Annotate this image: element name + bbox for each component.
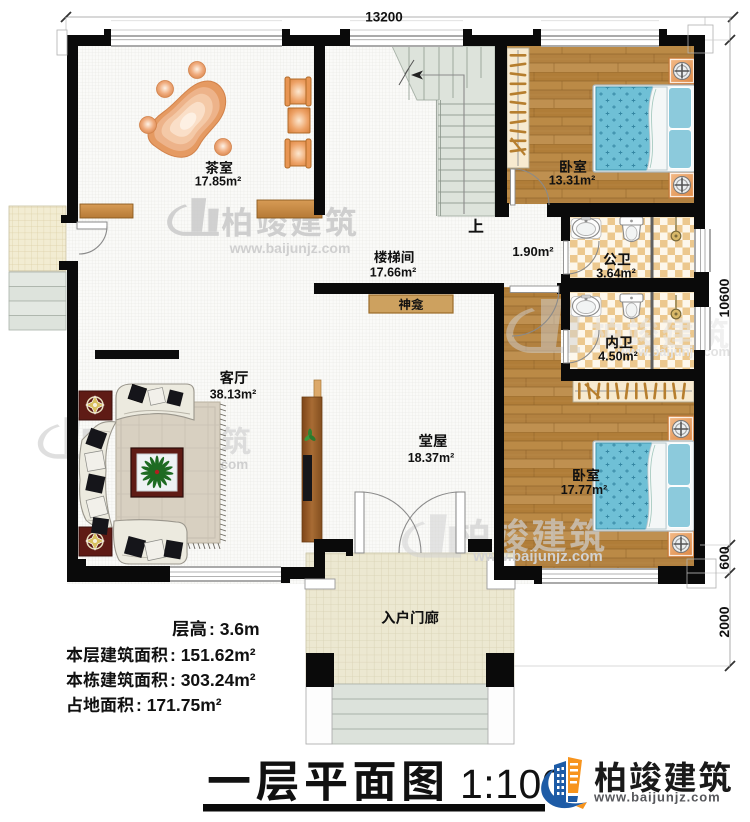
svg-text:1.90m²: 1.90m² bbox=[512, 244, 554, 259]
svg-text:17.85m²: 17.85m² bbox=[195, 175, 242, 189]
svg-text:www.baijunjz.com: www.baijunjz.com bbox=[229, 240, 351, 256]
svg-text:4.50m²: 4.50m² bbox=[598, 350, 638, 364]
svg-text:2000: 2000 bbox=[716, 606, 732, 637]
svg-text:10600: 10600 bbox=[716, 278, 732, 317]
svg-text:3.64m²: 3.64m² bbox=[596, 267, 636, 281]
svg-text:www.baijunjz.com: www.baijunjz.com bbox=[593, 790, 721, 805]
svg-text:38.13m²: 38.13m² bbox=[210, 388, 257, 402]
svg-text:18.37m²: 18.37m² bbox=[408, 451, 455, 465]
svg-text:13200: 13200 bbox=[365, 10, 403, 25]
svg-text:: 151.62m²: : 151.62m² bbox=[170, 645, 256, 665]
svg-text:17.77m²: 17.77m² bbox=[561, 483, 608, 497]
svg-text:: 171.75m²: : 171.75m² bbox=[136, 695, 222, 715]
svg-text:600: 600 bbox=[716, 546, 732, 570]
svg-text:: 3.6m: : 3.6m bbox=[209, 619, 260, 639]
svg-text:: 303.24m²: : 303.24m² bbox=[170, 670, 256, 690]
svg-text:17.66m²: 17.66m² bbox=[370, 266, 417, 280]
svg-text:13.31m²: 13.31m² bbox=[549, 174, 596, 188]
